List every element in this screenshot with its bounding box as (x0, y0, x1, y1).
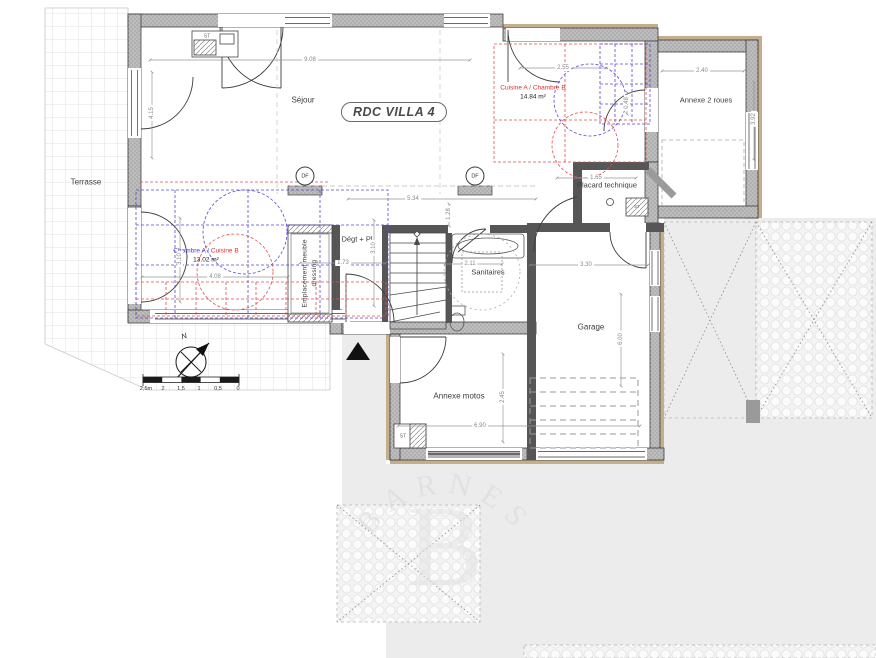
room-label-chambre-a: Chambre A / Cuisine B (173, 247, 238, 254)
dim-sejour-width: 9.08 (302, 57, 318, 63)
scale-label-5: 0 (236, 386, 239, 392)
terrace (45, 8, 330, 390)
room-label-terrasse: Terrasse (71, 177, 102, 186)
dim-degt-height: 3.10 (371, 240, 377, 256)
dim-garage-height: 6.00 (618, 331, 624, 347)
room-label-annexe-motos: Annexe motos (433, 391, 484, 400)
df-marker-1: DF (296, 167, 315, 186)
room-label-garage: Garage (578, 322, 605, 331)
gravel-zone-right (746, 222, 872, 423)
dim-cuisine-door: 0.48 (624, 95, 630, 111)
scale-label-2: 1,5 (177, 386, 185, 392)
scale-label-0: 2,5m (140, 386, 152, 392)
dim-chambre-height: 3.10 (177, 251, 183, 267)
st-marker-3: ST (634, 205, 640, 210)
room-label-placard: Placard technique (577, 182, 637, 191)
bathroom-fixtures (444, 234, 524, 331)
floor-plan-page: BARNES B RDC VILLA 4 Séjour Cuisine A / … (0, 0, 876, 658)
dim-annexe2-height: 3.92 (751, 111, 757, 127)
annexe-dashed-zone (662, 140, 744, 210)
dim-annexe2-width: 2.40 (694, 68, 710, 74)
dim-chambre-width: 4.08 (207, 274, 223, 280)
st-marker-2: ST (400, 435, 406, 440)
dim-motos-height: 2.45 (500, 389, 506, 405)
dim-garage-width: 3.30 (578, 262, 594, 268)
dim-sejour-height: 4.15 (149, 105, 155, 121)
room-label-sejour: Séjour (291, 95, 314, 104)
dim-placard-width: 1.65 (588, 175, 604, 181)
room-label-degagement: Dégt + Pl (341, 236, 372, 245)
df-marker-2: DF (466, 167, 485, 186)
dim-sanitaires-width: 2.11 (462, 261, 477, 267)
dim-cuisine-width: 2.55 (555, 65, 571, 71)
room-label-sanitaires: Sanitaires (471, 269, 504, 278)
room-label-cuisine-a: Cuisine A / Chambre B (500, 84, 565, 91)
scale-label-1: 2 (161, 386, 164, 392)
staircase (390, 231, 446, 329)
room-label-annexe-2roues: Annexe 2 roues (680, 97, 733, 106)
watermark-monogram: B (407, 483, 484, 610)
st-marker-1: ST (204, 35, 210, 40)
plan-title: RDC VILLA 4 (341, 102, 447, 122)
scale-label-4: 0,5 (214, 386, 222, 392)
room-area-chambre-a: 13.02 m² (193, 256, 219, 263)
dim-hall-width: 5.34 (405, 196, 421, 202)
gravel-strip-bottom-right (524, 645, 876, 658)
garage-door-dashes (530, 378, 638, 448)
dim-motos-width: 6.90 (472, 423, 488, 429)
scale-label-3: 1 (197, 386, 200, 392)
room-label-chambre-a-red: Cuisine B (211, 247, 239, 254)
floor-plan-drawing: BARNES B (0, 0, 876, 658)
dim-degt-width: 1.73 (335, 260, 351, 266)
dim-hall-height: 1.28 (446, 206, 452, 222)
room-label-dressing: Emplacement meuble dressing (300, 226, 320, 321)
room-area-cuisine-a: 14.84 m² (520, 93, 546, 100)
